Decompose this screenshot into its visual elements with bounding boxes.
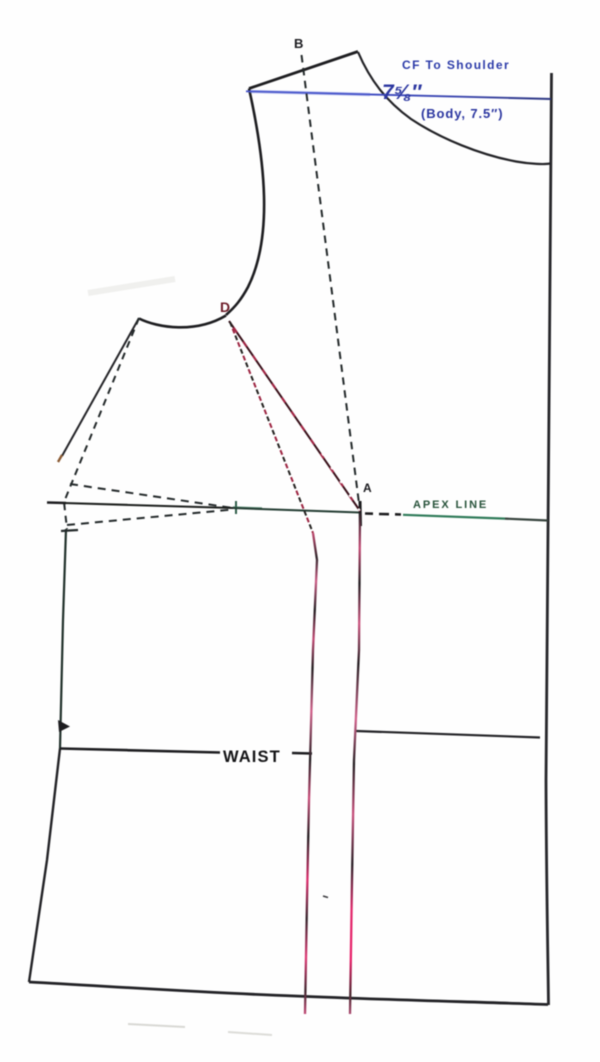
svg-text:WAIST: WAIST <box>223 748 281 766</box>
svg-text:A: A <box>363 481 372 495</box>
svg-text:CF To Shoulder: CF To Shoulder <box>402 58 510 72</box>
svg-text:B: B <box>294 36 303 51</box>
svg-text:APEX LINE: APEX LINE <box>413 499 488 511</box>
svg-text:(Body, 7.5″): (Body, 7.5″) <box>421 106 504 121</box>
svg-text:D: D <box>220 299 230 315</box>
svg-text:7⅝″: 7⅝″ <box>382 81 422 104</box>
